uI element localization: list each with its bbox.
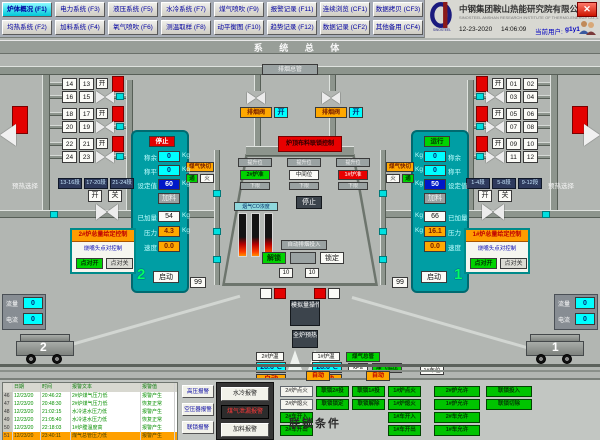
alarm-cell: 煤气总管压力低 [71,432,141,440]
alarm-header-cell [3,383,13,392]
preheat-section-button[interactable]: 5-8段 [492,178,516,189]
furnace1-setpoint-title: 1#炉总量给定控制 [466,230,528,242]
alarm-cell: 12/23/20 [13,432,41,440]
burner-flame-indicator: 火 [386,174,400,183]
flue-valve-icon[interactable] [322,92,340,104]
menu-button[interactable]: 水冷系统 (F7) [161,2,211,17]
damper-number: 24 [62,151,77,163]
damper-number: 21 [79,138,94,150]
sensor-dot [213,190,221,197]
rail-line [0,370,600,372]
pair-on-button[interactable]: 点对开 [470,258,497,269]
alarm-cell: 12/23/20 [13,424,41,432]
alarm-cell: 46 [3,392,13,400]
hoist-position-indicator: 1#炉准 [338,170,368,180]
charging-interlock-title: 炉顶布料联锁控制 [278,136,342,152]
co-level-bar [251,213,260,257]
damper-number: 02 [523,78,538,90]
alarm-cell: 23:40:11 [41,432,71,440]
co-bars-label: 烟气CO浓度 [234,202,278,211]
interlock-cell[interactable]: 1#车开出 [388,425,421,436]
sensor-dot [379,190,387,197]
damper-number: 13 [79,78,94,90]
auto-tag: 自动 [366,371,390,381]
valve-icon[interactable] [96,121,114,133]
interlock-cell[interactable]: 联锁2#投 [316,386,349,397]
alarm-cell: 21:02:15 [41,408,71,416]
interlock-cell[interactable]: 联锁投入 [486,386,532,397]
alarm-filter-button[interactable]: 高压报警 [182,385,214,398]
flue-flow-arrow-left [0,124,16,146]
preheat-all-label: 全炉预热 [293,333,317,339]
menu-button[interactable]: 报警记录 (F11) [267,2,317,17]
hoist-position-label: 提升位 [287,158,321,167]
auto-exhaust-label: 自动排烟投入 [281,240,327,250]
preheat-section-button[interactable]: 21-24段 [110,178,134,189]
gas-main-label: 煤气总管 [346,352,380,362]
preheat-section-button[interactable]: 13-16段 [58,178,82,189]
alarm-cell: 恢复正常 [141,416,175,424]
alarm-cell: 21:05:40 [41,416,71,424]
damper-alarm-indicator [476,106,488,122]
damper-number: 15 [79,91,94,103]
damper-number: 17 [79,108,94,120]
alarm-table-row[interactable]: 5112/23/2023:40:11煤气总管压力低报警产生 [3,432,177,440]
preheat-all-button[interactable]: 全炉预热 [292,330,318,348]
current-user-label: 当前用户: [535,26,563,36]
pair-off-button[interactable]: 点对关 [106,258,133,269]
pipe-stub [538,155,550,159]
furnace-row-label: 设定值 [448,180,468,190]
furnace2-setpoint-title: 2#炉总量给定控制 [72,230,134,242]
furnace2-status: 停止 [149,136,175,147]
leg-indicator [328,288,340,299]
sensor-dot [116,123,124,130]
top-menu-bar: 炉体概况 (F1)电力系统 (F3)液压系统 (F5)水冷系统 (F7)煤气喷吹… [0,0,600,38]
flue-pipe-label: 排烟总管 [262,64,318,75]
time-display: 14:06:09 [501,26,526,33]
left-instrument-panel: 流量0电流0 [2,294,46,330]
instrument-label: 电流 [6,315,18,324]
unlock-button[interactable]: 解锁 [262,252,286,264]
damper-open-button[interactable]: 开 [96,138,108,149]
right-instrument-panel: 流量0电流0 [554,294,598,330]
menu-button[interactable]: 煤气喷吹 (F9) [214,2,264,17]
pipe-stub [50,112,62,116]
damper-open-button[interactable]: 开 [492,138,504,149]
valve-icon[interactable] [96,151,114,163]
furnace-row-value: 加料 [158,193,180,204]
smoke-valve-label: 排烟阀 [315,107,347,118]
sensor-dot [116,93,124,100]
skip-bridge-right [352,296,553,356]
level-value: 99 [190,277,206,288]
alarm-cell: 报警产生 [141,392,175,400]
furnace-row-label: 称平 [132,166,157,176]
leg-alarm-indicator [314,288,326,299]
pipe-stub [538,125,550,129]
date-display: 12-23-2020 [459,26,492,33]
alarm-cell: 报警产生 [141,432,175,440]
furnace1-temp-label: 1#炉温 [312,352,340,361]
furnace-row-unit: Kg [182,180,192,190]
analog-setting-button[interactable]: 模拟量操作设定 [290,300,320,326]
flue-riser [329,75,336,91]
alarm-cell: 51 [3,432,13,440]
gas-valve-close-button[interactable]: 关 [498,190,512,202]
smoke-valve-status: 开 [349,107,363,118]
damper-number: 16 [62,91,77,103]
smoke-valve-status: 开 [274,107,288,118]
alarm-header-cell: 报警文本 [71,383,141,392]
preheat-section-button[interactable]: 17-20段 [84,178,108,189]
interlock-cell[interactable]: 联锁1#投 [352,386,385,397]
alarm-table-row[interactable]: 4712/23/2020:48:302#炉煤气压力低恢复正常 [3,400,177,408]
interlock-spacer [290,252,316,264]
burner-pair-label: 烧嘴头点对控制 [466,244,528,252]
menu-button[interactable]: 均热系统 (F2) [2,20,52,35]
lock-button[interactable]: 锁定 [320,252,344,264]
pipe-stub [50,82,62,86]
damper-number: 12 [523,151,538,163]
alarm-cell: 12/23/20 [13,392,41,400]
instrument-label: 流量 [6,299,18,308]
alarm-category-button[interactable]: 水冷报警 [221,387,269,401]
alarm-cell: 22:18:03 [41,424,71,432]
pipe-stub [538,112,550,116]
furnace-row-value: 60 [158,179,180,190]
flue-riser [254,75,261,91]
preheat-select-label: 预热选择 [548,180,574,190]
menu-button[interactable]: 电力系统 (F3) [55,2,105,17]
furnace-row-value: 0 [424,151,446,162]
sensor-dot [213,256,221,263]
sensor-dot [476,93,484,100]
hoist-position-indicator: 中间位 [289,170,319,180]
sensor-dot [116,153,124,160]
damper-number: 19 [79,121,94,133]
menu-button[interactable]: 趋势记录 (F12) [267,20,317,35]
preheat-section-button[interactable]: 1-4段 [466,178,490,189]
instrument-value: 0 [575,313,595,325]
menu-button[interactable]: 动平衡图 (F10) [214,20,264,35]
furnace1-status: 运行 [424,136,450,147]
damper-alarm-indicator [112,76,124,92]
alarm-cell: 47 [3,400,13,408]
furnace-row-value: 0 [158,151,180,162]
furnace-row-label: 速度 [132,242,157,252]
alarm-table-row[interactable]: 4812/23/2021:02:15水冷进水压力低报警产生 [3,408,177,416]
alarm-filter-button[interactable]: 空压器报警 [182,403,214,416]
alarm-cell: 1#炉膛温度高 [71,424,141,432]
menu-button[interactable]: 测温取样 (F8) [161,20,211,35]
analog-setting-label: 模拟量操作设定 [291,303,320,309]
menu-row-2: 均热系统 (F2)加料系统 (F4)氧气喷吹 (F6)测温取样 (F8)动平衡图… [2,20,426,35]
pair-off-button[interactable]: 点对关 [500,258,527,269]
furnace-row-label: 称平 [448,166,468,176]
furnace-row-value: 0.0 [424,241,446,252]
skip-car-1[interactable]: 1 [526,334,584,364]
furnace-row-unit: Kg [182,152,192,162]
furnace-row-unit: Kg [182,212,192,222]
damper-number: 05 [506,108,521,120]
damper-open-button[interactable]: 开 [492,108,504,119]
alarm-category-button[interactable]: 加料报警 [221,423,269,437]
alarm-cell: 12/23/20 [13,408,41,416]
alarm-table-row[interactable]: 4612/23/2020:46:222#炉煤气压力低报警产生 [3,392,177,400]
pipe-stub [50,155,62,159]
instrument-value: 0 [23,297,43,309]
damper-open-button[interactable]: 开 [96,108,108,119]
co-level-bar [264,213,273,257]
sensor-dot [379,228,387,235]
hoist-position-indicator: 2#炉准 [240,170,270,180]
menu-button[interactable]: 其他备用 (CF4) [373,20,423,35]
menu-button[interactable]: 加料系统 (F4) [55,20,105,35]
furnace-row-unit: Kg [413,212,423,222]
alarm-category-button[interactable]: 煤气泄漏报警 [221,405,269,419]
auto-tag: 自动 [306,371,330,381]
car1-number: 1 [552,340,559,354]
menu-row-1: 炉体概况 (F1)电力系统 (F3)液压系统 (F5)水冷系统 (F7)煤气喷吹… [2,2,426,17]
stop-button[interactable]: 停止 [296,196,322,209]
furnace-row-unit: Kg [413,180,423,190]
damper-number: 18 [62,108,77,120]
pair-on-button[interactable]: 点对开 [76,258,103,269]
menu-button[interactable]: 氧气喷吹 (F6) [108,20,158,35]
alarm-table-row[interactable]: 4912/23/2021:05:40水冷进水压力低恢复正常 [3,416,177,424]
alarm-table-header: 日期时间报警文本报警值 [3,383,177,392]
alarm-cell: 12/23/20 [13,416,41,424]
burner-pair-label: 烧嘴头点对控制 [72,244,134,252]
gas-valve-icon[interactable] [96,204,118,220]
pipe-stub [50,95,62,99]
menu-button[interactable]: 液压系统 (F5) [108,2,158,17]
bottom-panel: 日期时间报警文本报警值4612/23/2020:46:222#炉煤气压力低报警产… [0,378,600,440]
leg-indicator [260,288,272,299]
alarm-cell: 2#炉煤气压力低 [71,400,141,408]
furnace-row-value: 0.0 [158,241,180,252]
alarm-cell: 水冷进水压力低 [71,416,141,424]
furnace1-start-button[interactable]: 启动 [421,271,447,283]
pipe-stub [50,125,62,129]
damper-number: 11 [506,151,521,163]
car2-number: 2 [40,340,47,354]
smoke-valve-label: 排烟阀 [240,107,272,118]
interlock-cell[interactable]: 2#炉熄火 [280,399,313,410]
alarm-cell: 2#炉煤气压力低 [71,392,141,400]
damper-number: 07 [506,121,521,133]
interlock-cell[interactable]: 1#车允许 [434,425,480,436]
sensor-dot [213,228,221,235]
alarm-cell: 报警产生 [141,408,175,416]
interlock-cell[interactable]: 2#炉允许 [434,386,480,397]
header-right: SINOSTEEL 中钢集团鞍山热能研究院有限公司 SINOSTEEL ANSH… [424,0,600,38]
valve-icon[interactable] [96,91,114,103]
interlock-cell[interactable]: 2#车允许 [434,412,480,423]
preheat-select-label: 预热选择 [12,180,38,190]
furnace-row-unit: Kg [413,152,423,162]
position-value: 10 [305,268,319,278]
left-burner-pipe [214,150,220,285]
preheat-section-button[interactable]: 9-12段 [518,178,542,189]
burner-flame-indicator: 火 [200,174,214,183]
menu-button[interactable]: 连续浏览 (CF1) [320,2,370,17]
interlock-cell[interactable]: 1#炉熄火 [388,399,421,410]
interlock-cell[interactable]: 1#车开入 [388,412,421,423]
rail-line [0,364,600,367]
alarm-cell: 恢复正常 [141,400,175,408]
furnace-row-value: 0 [424,165,446,176]
pipe-stub [538,82,550,86]
sensor-dot [542,211,550,218]
furnace-row-value: 16.1 [424,226,446,237]
damper-alarm-indicator [476,136,488,152]
furnace-row-label: 已加量 [132,212,157,222]
alarm-header-cell: 时间 [41,383,71,392]
leg-alarm-indicator [274,288,286,299]
damper-alarm-indicator [112,106,124,122]
furnace-row-unit: Kg [182,166,192,176]
furnace1-number: 1 [454,266,462,283]
furnace-row-unit: Kg [413,166,423,176]
gas-valve-close-button[interactable]: 关 [108,190,122,202]
damper-number: 23 [79,151,94,163]
instrument-label: 电流 [558,315,570,324]
hmi-stage: 炉体概况 (F1)电力系统 (F3)液压系统 (F5)水冷系统 (F7)煤气喷吹… [0,0,600,440]
burner-valve-label: 煤气快切 [386,162,414,172]
furnace-row-value: 66 [424,211,446,222]
damper-number: 06 [523,108,538,120]
damper-number: 04 [523,91,538,103]
valve-icon[interactable] [486,151,504,163]
interlock-cell[interactable]: 联锁解除 [352,399,385,410]
pipe-stub [538,142,550,146]
alarm-header-cell: 日期 [13,383,41,392]
furnace2-temp-label: 2#炉温 [256,352,284,361]
damper-alarm-indicator [112,136,124,152]
skip-pit-wedge [288,350,302,370]
instrument-label: 流量 [558,299,570,308]
skip-car-2[interactable]: 2 [16,334,74,364]
sensor-dot [476,153,484,160]
furnace1-setpoint-box: 1#炉总量给定控制 烧嘴头点对控制 点对开 点对关 [464,228,530,274]
furnace2-start-button[interactable]: 启动 [153,271,179,283]
gas-valve-icon[interactable] [482,204,504,220]
furnace-row-unit: Kg [182,227,192,237]
furnace-row-label: 速度 [448,242,468,252]
hoist-lower-limit: 下限 [338,182,368,190]
alarm-cell: 20:48:30 [41,400,71,408]
instrument-value: 0 [575,297,595,309]
furnace-row-label: 已加量 [448,212,468,222]
page-title: 系 统 总 体 [0,40,600,54]
alarm-filter-button[interactable]: 联锁报警 [182,421,214,434]
hoist-position-label: 提升位 [336,158,370,167]
alarm-cell: 12/23/20 [13,400,41,408]
furnace-row-value: 50 [424,179,446,190]
hoist-lower-limit: 下限 [289,182,319,190]
alarm-table[interactable]: 日期时间报警文本报警值4612/23/2020:46:222#炉煤气压力低报警产… [2,382,178,440]
valve-icon[interactable] [486,91,504,103]
alarm-cell: 49 [3,416,13,424]
close-button[interactable]: ✕ [577,2,597,17]
sensor-dot [476,123,484,130]
flue-valve-icon[interactable] [247,92,265,104]
furnace2-number: 2 [137,266,145,283]
furnace-row-value: 54 [158,211,180,222]
position-value: 10 [279,268,293,278]
furnace-row-label: 压力 [448,227,468,237]
gas-valve-open-button[interactable]: 开 [88,190,102,202]
damper-number: 10 [523,138,538,150]
alarm-cell: 50 [3,424,13,432]
alarm-table-row[interactable]: 5012/23/2022:18:031#炉膛温度高报警产生 [3,424,177,432]
sensor-dot [50,211,58,218]
hoist-position-label: 提升位 [238,158,272,167]
furnace-row-value: 4.3 [158,226,180,237]
sinosteel-logo-icon [428,2,456,28]
damper-open-button[interactable]: 开 [96,78,108,89]
flue-flow-arrow-right [584,124,600,146]
co-level-bar [238,213,247,257]
damper-number: 09 [506,138,521,150]
interlock-cell[interactable]: 1#炉允许 [434,399,480,410]
interlock-cell[interactable]: 2#炉点火 [280,386,313,397]
pipe-stub [538,95,550,99]
furnace-row-value: 0 [158,165,180,176]
furnace-row-value: 加料 [424,193,446,204]
logo-caption: SINOSTEEL [426,28,458,32]
alarm-cell: 20:46:22 [41,392,71,400]
furnace-row-label: 压力 [132,227,157,237]
instrument-value: 0 [23,313,43,325]
furnace-row-label: 设定值 [132,180,157,190]
pipe-stub [50,142,62,146]
damper-number: 14 [62,78,77,90]
level-value: 99 [392,277,408,288]
furnace-row-unit: Kg [413,227,423,237]
interlock-cell[interactable]: 联锁切除 [486,399,532,410]
left-manifold-pipe [42,75,50,218]
menu-button[interactable]: 数据拷贝 (CF3) [373,2,423,17]
hoist-lower-limit: 下限 [240,182,270,190]
gas-valve-open-button[interactable]: 开 [478,190,492,202]
right-manifold-pipe [550,75,558,218]
users-icon[interactable] [578,19,597,36]
damper-number: 22 [62,138,77,150]
furnace-row-label: 称余 [448,152,468,162]
interlock-cell[interactable]: 联锁锁定 [316,399,349,410]
alarm-cell: 报警产生 [141,424,175,432]
menu-button[interactable]: 数据记录 (CF2) [320,20,370,35]
menu-button[interactable]: 炉体概况 (F1) [2,2,52,17]
damper-alarm-indicator [476,76,488,92]
damper-number: 03 [506,91,521,103]
damper-number: 01 [506,78,521,90]
furnace2-setpoint-box: 2#炉总量给定控制 烧嘴头点对控制 点对开 点对关 [70,228,136,274]
damper-open-button[interactable]: 开 [492,78,504,89]
alarm-cell: 48 [3,408,13,416]
interlock-cell[interactable]: 1#炉点火 [388,386,421,397]
furnace-row-label: 称余 [132,152,157,162]
valve-icon[interactable] [486,121,504,133]
damper-number: 08 [523,121,538,133]
damper-number: 20 [62,121,77,133]
sensor-dot [379,256,387,263]
alarm-header-cell: 报警值 [141,383,175,392]
alarm-cell: 水冷进水压力低 [71,408,141,416]
